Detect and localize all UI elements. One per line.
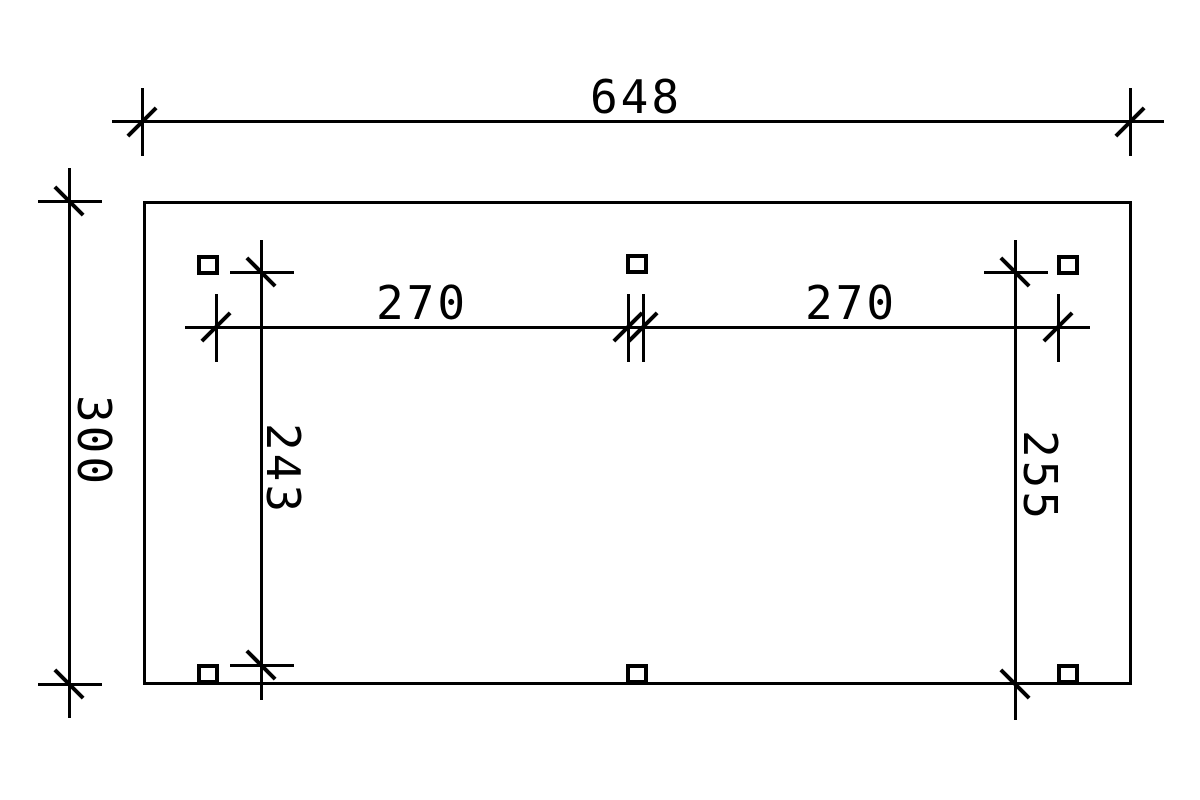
dim-label-overall-width: 648 — [590, 74, 682, 120]
dimension-drawing: 648 300 270 270 243 255 — [0, 0, 1200, 800]
post-top-middle — [626, 254, 648, 274]
post-top-right — [1057, 255, 1079, 275]
dim-label-right-bay: 270 — [805, 280, 897, 326]
dim-label-right-post-offset: 255 — [1017, 430, 1063, 522]
dim-label-left-post-offset: 243 — [260, 423, 306, 515]
post-bottom-right — [1057, 664, 1079, 684]
post-top-left — [197, 255, 219, 275]
dim-label-left-bay: 270 — [376, 280, 468, 326]
post-bottom-middle — [626, 664, 648, 684]
post-bottom-left — [197, 664, 219, 684]
dim-label-overall-depth: 300 — [71, 395, 117, 487]
